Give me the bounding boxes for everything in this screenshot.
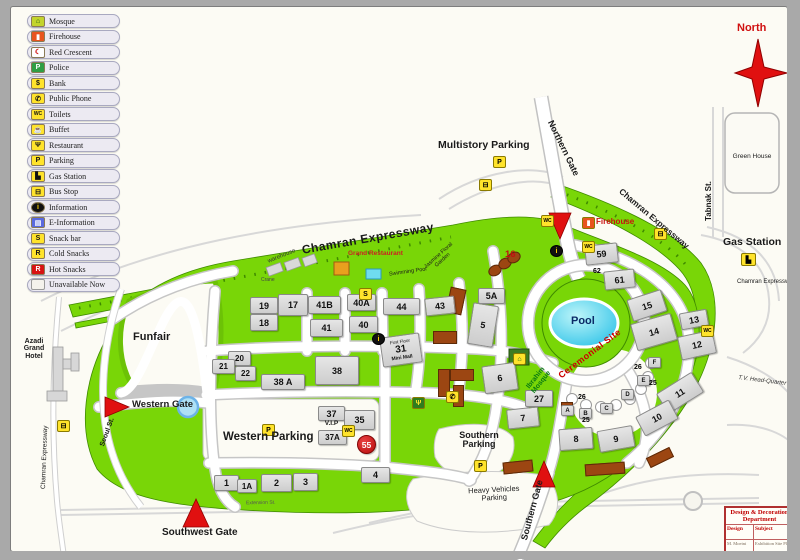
buffet-icon: ☕ xyxy=(31,124,45,135)
label-heavy-vehicles-parking: Heavy Vehicles Parking xyxy=(462,484,527,503)
legend-item-unavailable: Unavailable Now xyxy=(27,278,120,292)
pavilion-A: A xyxy=(561,405,574,416)
pavilion-D: D xyxy=(621,389,634,400)
label-azadi-grand-hotel: Azadi Grand Hotel xyxy=(16,338,52,360)
building-44: 44 xyxy=(383,298,420,315)
snack-bar-icon: S xyxy=(31,233,45,244)
label-firehouse: Firehouse xyxy=(596,218,634,226)
legend-label: Toilets xyxy=(49,110,71,119)
north-compass-star xyxy=(735,39,787,107)
red-crescent-icon: ☾ xyxy=(31,47,45,58)
legend-label: Gas Station xyxy=(49,172,86,181)
legend-item-parking: PParking xyxy=(27,154,120,168)
wc-icon: WC xyxy=(582,241,595,253)
restaurant-icon: Ψ xyxy=(412,397,425,409)
legend-item-public-phone: ✆Public Phone xyxy=(27,92,120,106)
label-26: 26 xyxy=(578,394,586,401)
wc-icon: WC xyxy=(31,109,45,120)
firehouse-icon: ▮ xyxy=(31,31,45,42)
building-22: 22 xyxy=(235,366,256,381)
legend-item-bus-stop: ⊟Bus Stop xyxy=(27,185,120,199)
label-extension-st: Extension St. xyxy=(246,501,276,507)
building-62-label: 62 xyxy=(593,268,601,275)
unavailable-icon xyxy=(31,279,45,290)
phone-icon: ✆ xyxy=(31,93,45,104)
legend-label: Parking xyxy=(49,156,74,165)
snack-bar-icon: S xyxy=(359,288,372,300)
legend-label: Information xyxy=(49,203,87,212)
legend-item-bank: $Bank xyxy=(27,76,120,90)
building-2: 2 xyxy=(261,474,292,492)
map-page: ⌂Mosque ▮Firehouse ☾Red Crescent PPolice… xyxy=(10,6,788,552)
legend-item-red-crescent: ☾Red Crescent xyxy=(27,45,120,59)
legend-label: Police xyxy=(49,63,69,72)
building-61: 61 xyxy=(603,268,636,290)
design-box: Design & Decoration Department Design Su… xyxy=(724,506,795,556)
parking-icon: P xyxy=(493,156,506,168)
design-box-header-row: Design Subject xyxy=(726,525,793,539)
legend-label: Cold Snacks xyxy=(49,249,89,258)
legend-item-gas-station: ▙Gas Station xyxy=(27,169,120,183)
building-41B: 41B xyxy=(308,296,341,314)
legend-label: Firehouse xyxy=(49,32,81,41)
information-icon: i xyxy=(550,245,563,257)
mosque-icon: ⌂ xyxy=(31,16,45,27)
design-box-title: Design & Decoration Department xyxy=(726,508,793,525)
e-information-icon: ▤ xyxy=(31,217,45,228)
building-1: 1 xyxy=(214,475,239,491)
legend-item-police: PPolice xyxy=(27,61,120,75)
grand-restaurant-building xyxy=(334,262,349,275)
legend-item-cold-snacks: RCold Snacks xyxy=(27,247,120,261)
legend-label: Red Crescent xyxy=(49,48,92,57)
legend-label: Buffet xyxy=(49,125,69,134)
parking-icon: P xyxy=(31,155,45,166)
label-25: 25 xyxy=(649,380,657,387)
building-43: 43 xyxy=(424,295,456,316)
legend: ⌂Mosque ▮Firehouse ☾Red Crescent PPolice… xyxy=(27,14,120,292)
building-31-mini-mall: First Floor 31 Mini Mall xyxy=(379,332,423,367)
phone-icon: ✆ xyxy=(446,391,459,403)
legend-label: E-Information xyxy=(49,218,95,227)
design-column-label: Design xyxy=(726,525,754,539)
legend-label: Unavailable Now xyxy=(49,280,105,289)
mini-mall-label: Mini Mall xyxy=(391,353,413,362)
wc-icon: WC xyxy=(701,325,714,337)
building-38: 38 xyxy=(315,356,359,385)
label-western-parking: Western Parking xyxy=(223,431,314,443)
label-26: 26 xyxy=(634,364,642,371)
frame-left xyxy=(0,0,10,559)
legend-item-information: iInformation xyxy=(27,200,120,214)
roundabout-outline xyxy=(684,492,702,510)
label-southern-parking: Southern Parking xyxy=(448,431,510,450)
legend-label: Hot Snacks xyxy=(49,265,86,274)
building-18: 18 xyxy=(250,314,278,331)
frame-right xyxy=(787,0,800,559)
label-25: 25 xyxy=(582,417,590,424)
label-funfair: Funfair xyxy=(133,332,170,344)
legend-label: Bank xyxy=(49,79,66,88)
building-4: 4 xyxy=(361,467,390,483)
building-1A: 1A xyxy=(237,479,257,493)
label-gas-station: Gas Station xyxy=(723,237,781,248)
building-37: 37 xyxy=(318,406,345,421)
building-16-label: 16 xyxy=(505,249,516,260)
information-icon: i xyxy=(31,202,45,213)
bank-icon: $ xyxy=(31,78,45,89)
building-3: 3 xyxy=(293,473,318,491)
pavilion-F: F xyxy=(648,357,661,368)
building-19: 19 xyxy=(250,297,278,314)
label-crane: Crane xyxy=(261,278,275,283)
legend-item-restaurant: ΨRestaurant xyxy=(27,138,120,152)
frame-bottom xyxy=(0,551,800,559)
legend-item-buffet: ☕Buffet xyxy=(27,123,120,137)
unavailable-building xyxy=(433,331,457,344)
label-tabnak-st: Tabnak St. xyxy=(705,181,713,221)
building-8: 8 xyxy=(558,427,593,451)
legend-item-toilets: WCToilets xyxy=(27,107,120,121)
legend-label: Public Phone xyxy=(49,94,91,103)
hot-snacks-icon: R xyxy=(31,264,45,275)
gas-station-icon: ▙ xyxy=(31,171,45,182)
building-55: 55 xyxy=(357,435,376,454)
map-stage: ⌂Mosque ▮Firehouse ☾Red Crescent PPolice… xyxy=(1,1,800,560)
legend-item-hot-snacks: RHot Snacks xyxy=(27,262,120,276)
legend-label: Bus Stop xyxy=(49,187,78,196)
unavailable-building xyxy=(450,369,474,381)
gas-station-icon: ▙ xyxy=(741,253,756,266)
legend-item-e-information: ▤E-Information xyxy=(27,216,120,230)
building-7: 7 xyxy=(506,406,540,429)
wc-icon: WC xyxy=(541,215,554,227)
information-icon: i xyxy=(372,333,385,345)
map-canvas xyxy=(1,1,800,560)
parking-icon: P xyxy=(474,460,487,472)
legend-label: Mosque xyxy=(49,17,75,26)
legend-label: Restaurant xyxy=(49,141,83,150)
legend-item-snack-bar: SSnack bar xyxy=(27,231,120,245)
label-pool: Pool xyxy=(571,316,595,328)
legend-item-firehouse: ▮Firehouse xyxy=(27,30,120,44)
swimming-pool-building xyxy=(366,269,381,279)
mosque-icon: ⌂ xyxy=(513,353,526,365)
bus-stop-icon: ⊟ xyxy=(479,179,492,191)
label-grand-restaurant: Grand Restaurant xyxy=(348,251,403,258)
cold-snacks-icon: R xyxy=(31,248,45,259)
building-40: 40 xyxy=(349,316,378,333)
police-icon: P xyxy=(31,62,45,73)
restaurant-icon: Ψ xyxy=(31,140,45,151)
frame-top xyxy=(0,0,800,6)
building-17: 17 xyxy=(278,294,308,316)
firehouse-icon: ▮ xyxy=(582,217,595,229)
building-6: 6 xyxy=(481,362,519,394)
legend-item-mosque: ⌂Mosque xyxy=(27,14,120,28)
building-41: 41 xyxy=(310,319,343,337)
bus-stop-icon: ⊟ xyxy=(31,186,45,197)
label-western-gate: Western Gate xyxy=(132,400,193,410)
building-5A: 5A xyxy=(478,288,505,304)
bus-stop-icon: ⊟ xyxy=(57,420,70,432)
label-green-house: Green House xyxy=(725,154,779,161)
pavilion-C: C xyxy=(600,403,613,414)
label-multistory-parking: Multistory Parking xyxy=(438,140,530,151)
building-21: 21 xyxy=(212,359,235,374)
legend-label: Snack bar xyxy=(49,234,81,243)
label-southwest-gate: Southwest Gate xyxy=(162,528,238,539)
building-38A: 38 A xyxy=(261,374,305,390)
label-north: North xyxy=(737,23,766,35)
label-vip: V.I.P xyxy=(318,421,345,428)
